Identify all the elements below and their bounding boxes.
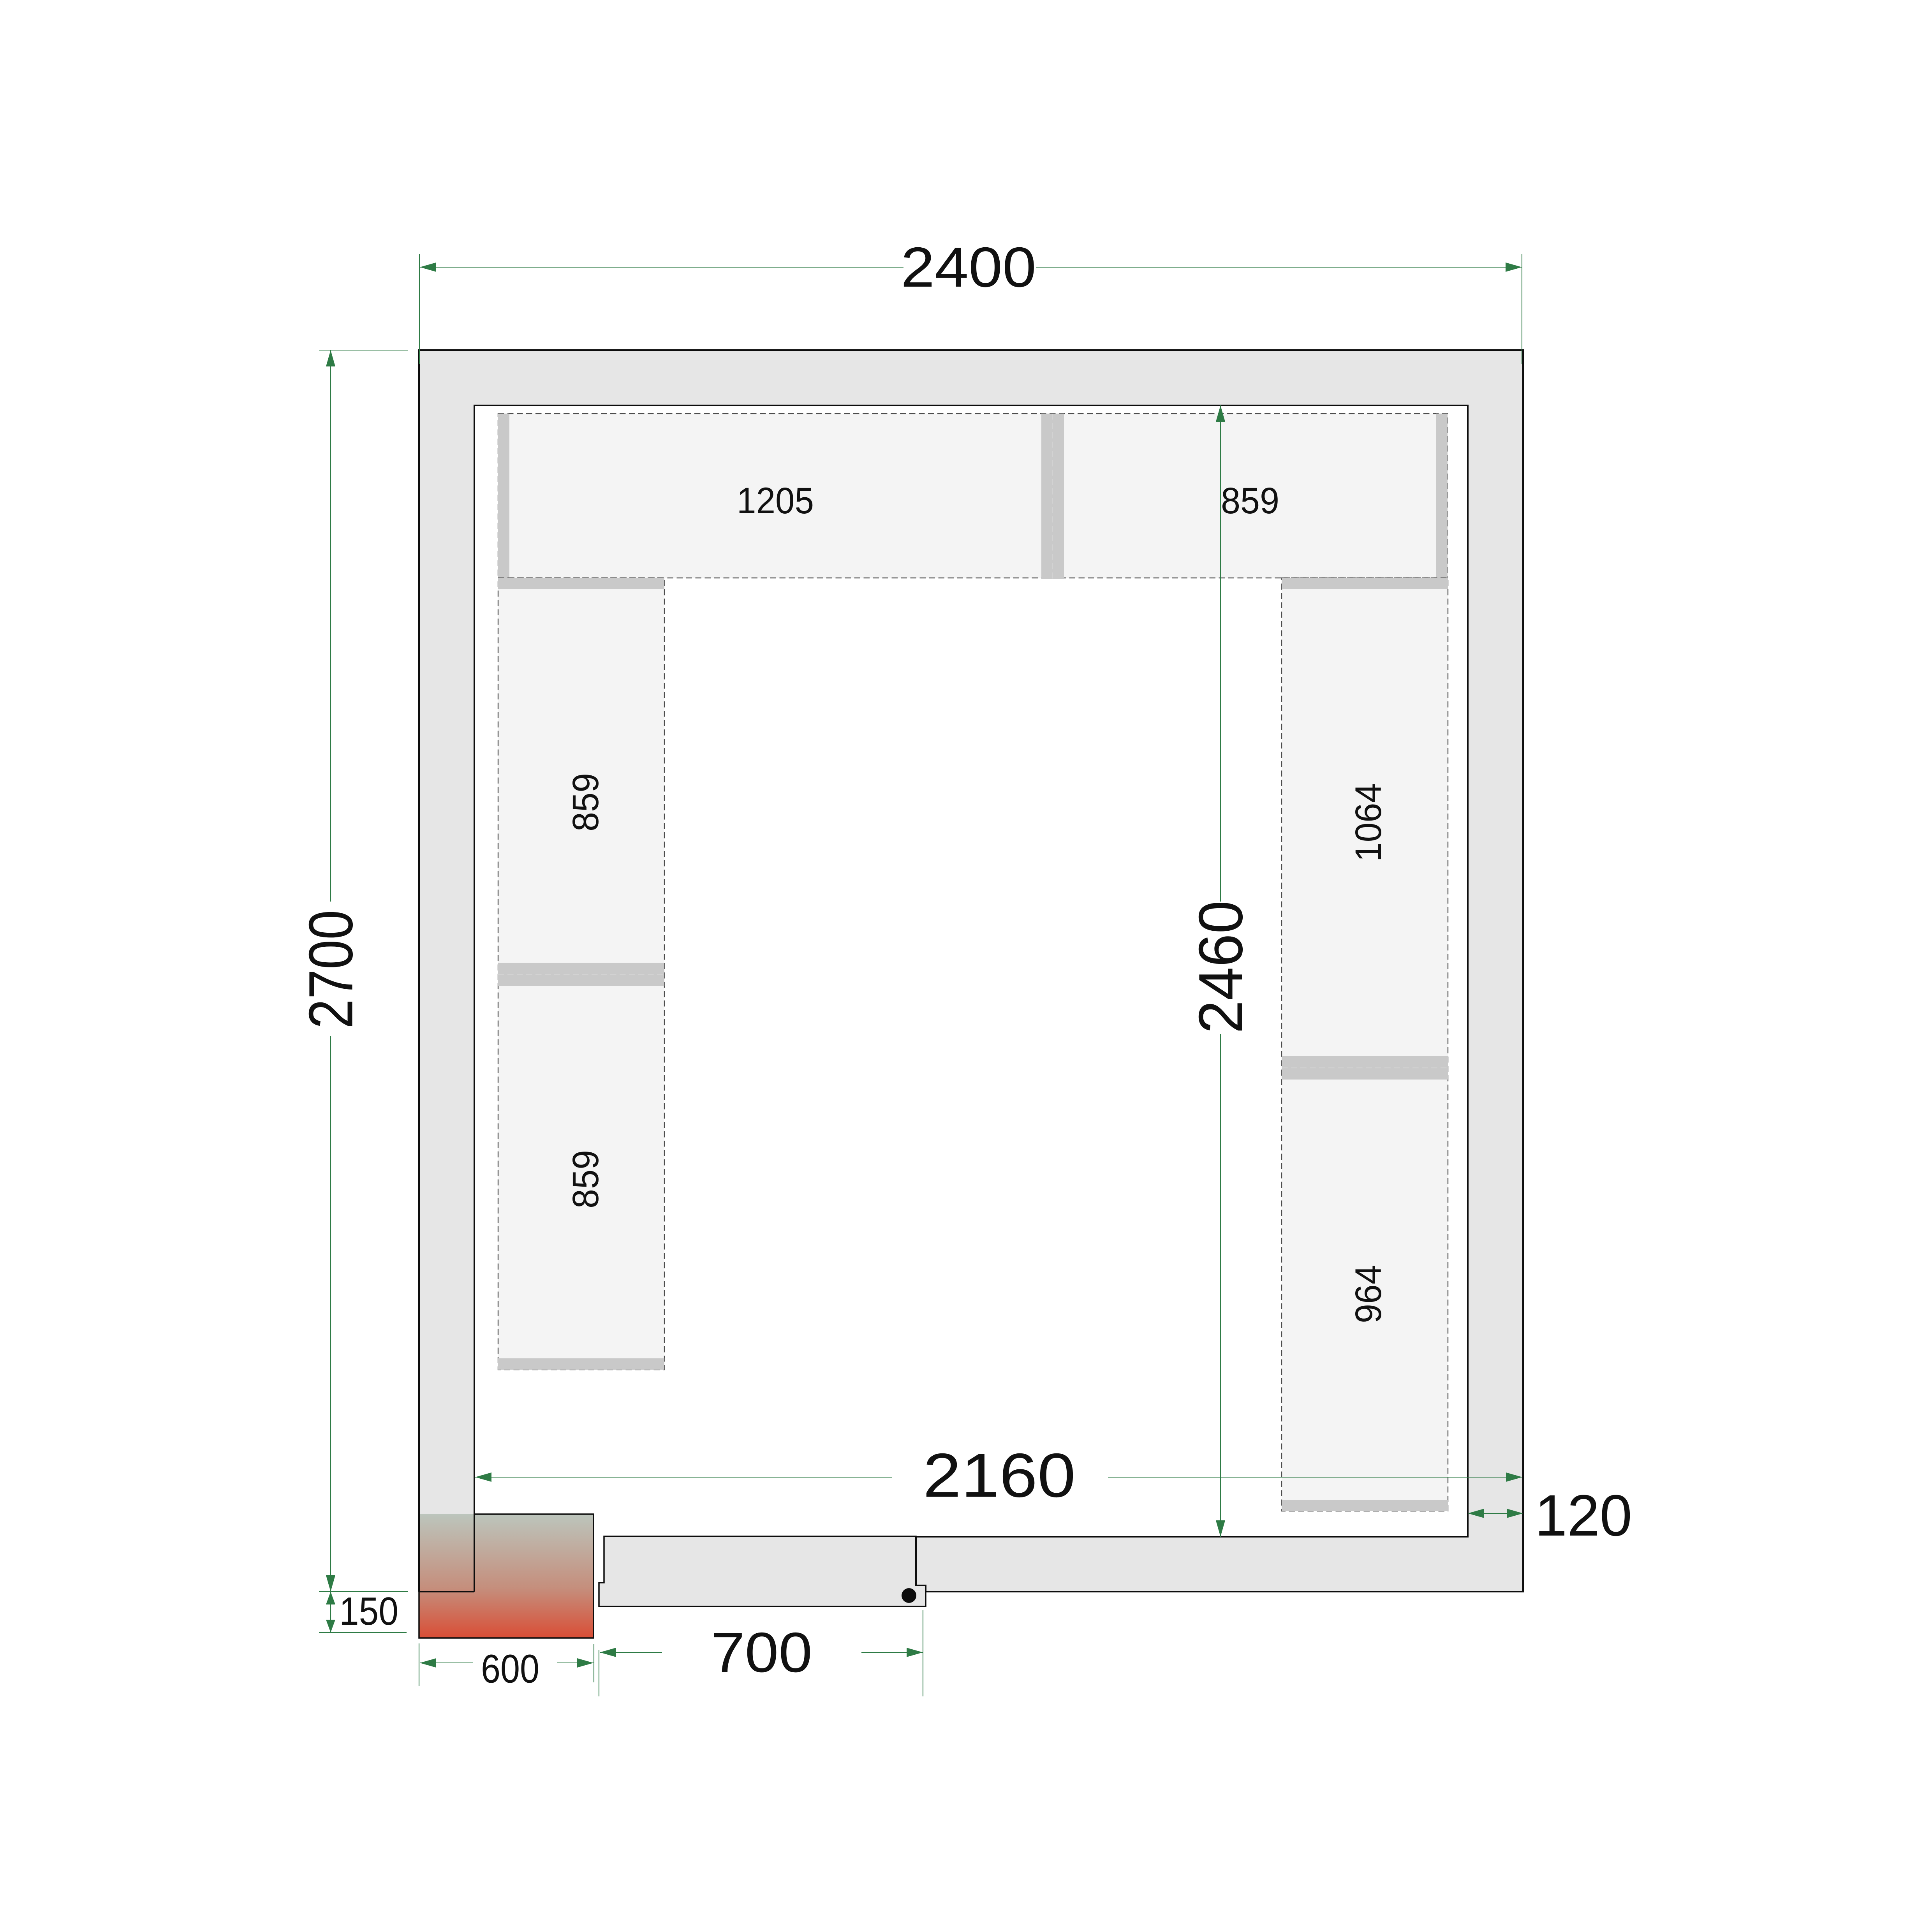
svg-text:859: 859 <box>565 1150 606 1208</box>
svg-text:2400: 2400 <box>901 236 1036 299</box>
svg-text:2460: 2460 <box>1186 900 1256 1034</box>
svg-text:859: 859 <box>565 773 606 831</box>
svg-text:1064: 1064 <box>1348 783 1389 862</box>
svg-text:2160: 2160 <box>923 1441 1076 1510</box>
svg-text:700: 700 <box>711 1621 812 1684</box>
svg-text:150: 150 <box>339 1590 398 1633</box>
svg-text:600: 600 <box>481 1647 539 1691</box>
svg-text:964: 964 <box>1348 1265 1389 1323</box>
svg-text:2700: 2700 <box>296 910 366 1029</box>
svg-text:1205: 1205 <box>737 480 814 521</box>
svg-text:859: 859 <box>1221 480 1279 521</box>
svg-text:120: 120 <box>1535 1483 1632 1548</box>
